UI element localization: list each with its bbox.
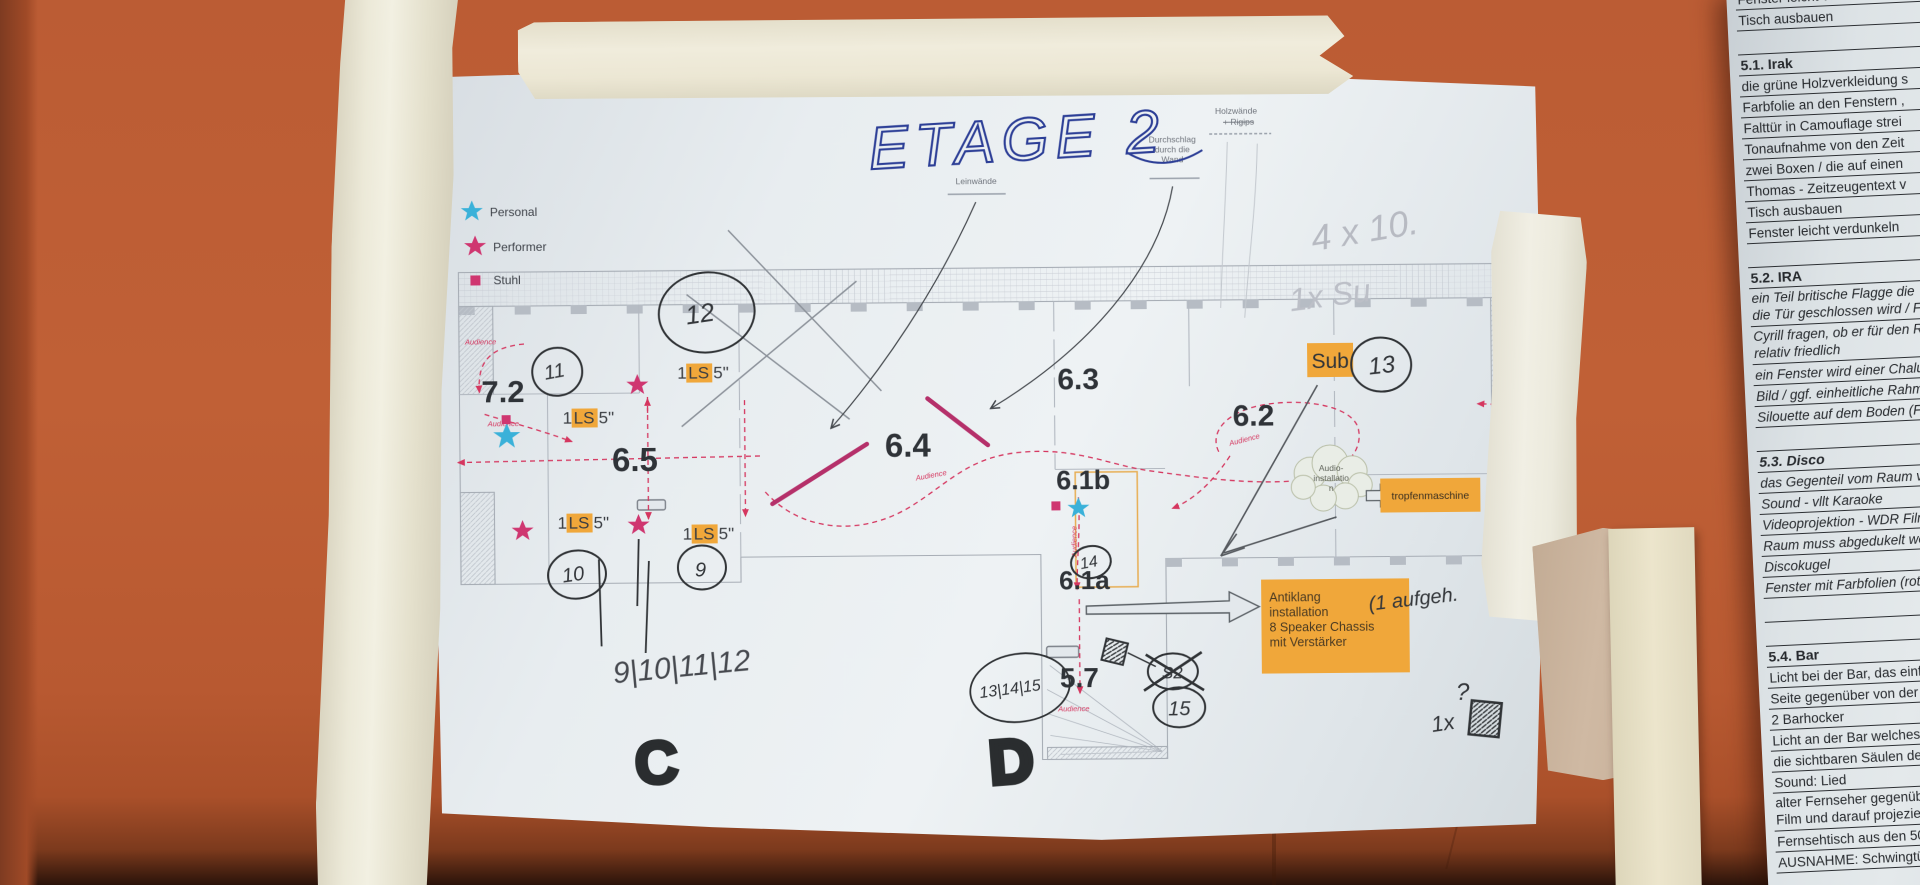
svg-text:1: 1 (683, 525, 693, 544)
svg-text:5": 5" (599, 408, 615, 427)
svg-text:14: 14 (1079, 553, 1100, 573)
tape-strip-cream (1608, 527, 1702, 885)
svg-text:5": 5" (593, 513, 609, 532)
svg-text:5": 5" (713, 363, 729, 382)
svg-text:Audience: Audience (1057, 704, 1089, 713)
room-6-4: 6.4 (885, 426, 932, 463)
svg-text:S2: S2 (1162, 663, 1184, 682)
stuhl-square-icon (470, 275, 480, 285)
personal-star-icon (461, 200, 483, 220)
svg-text:ETAGE 2: ETAGE 2 (867, 97, 1169, 182)
svg-text:9: 9 (695, 559, 706, 581)
svg-text:1: 1 (557, 514, 567, 533)
performer-star-icon (464, 235, 486, 255)
wall-left-edge (0, 0, 38, 885)
arrow-to-antiklang (1086, 592, 1259, 624)
svg-text:Sub: Sub (1311, 350, 1349, 373)
handwritten-sequence: 9|10|11|12 (611, 644, 752, 690)
svg-text:12: 12 (683, 297, 717, 331)
question-mark-note: ? (1456, 679, 1470, 706)
bench-symbol (637, 500, 665, 510)
svg-text:15: 15 (1168, 698, 1191, 720)
grey-cross-lines (680, 229, 882, 427)
svg-text:1: 1 (677, 364, 687, 383)
svg-text:LS: LS (574, 408, 595, 427)
barrier-lines (771, 398, 988, 504)
svg-text:13: 13 (1367, 351, 1397, 381)
tape-strip-top (518, 14, 1354, 103)
svg-text:installation: installation (1269, 605, 1328, 620)
svg-text:LS: LS (694, 524, 715, 543)
svg-text:installatio: installatio (1313, 473, 1349, 483)
bench-symbol (1047, 646, 1079, 657)
svg-text:11: 11 (542, 359, 566, 384)
svg-text:LS: LS (688, 363, 709, 382)
checklist: Fenster leicht verTisch ausbauen5.1. Ira… (1735, 0, 1920, 874)
svg-text:Audio-: Audio- (1319, 463, 1344, 473)
hatched-box-small (1101, 638, 1128, 665)
svg-text:10: 10 (561, 563, 586, 588)
stuhl-square-icon (502, 415, 511, 424)
audio-installation-cloud: Audio- installatio n (1291, 445, 1373, 512)
tropfenmaschine-label: tropfenmaschine (1380, 478, 1480, 513)
stuhl-square-icon (1051, 501, 1060, 510)
marker-letter-c: C (633, 728, 680, 798)
rigips-label: + Rigips (1223, 117, 1254, 127)
svg-text:LS: LS (568, 513, 589, 532)
floor-plan-paper: Audience Audience Audience Audience Audi… (427, 50, 1548, 866)
legend-performer-label: Performer (493, 240, 546, 254)
marker-letter-d: D (986, 726, 1036, 798)
svg-text:8 Speaker Chassis: 8 Speaker Chassis (1269, 620, 1374, 635)
room-7-2: 7.2 (481, 374, 524, 409)
floor-plan: Audience Audience Audience Audience Audi… (427, 50, 1548, 866)
svg-text:5": 5" (719, 524, 735, 543)
plan-content: Audience Audience Audience Audience Audi… (455, 94, 1528, 803)
leinwaende-label: Leinwände (956, 176, 997, 186)
legend-stuhl-label: Stuhl (493, 273, 520, 287)
svg-text:Audience: Audience (1227, 431, 1261, 448)
svg-text:1: 1 (563, 409, 573, 428)
svg-text:tropfenmaschine: tropfenmaschine (1391, 490, 1469, 503)
svg-text:Audience: Audience (914, 468, 947, 483)
title-etage2: ETAGE 2 (866, 97, 1202, 182)
personal-star-icon (1067, 497, 1089, 517)
room-6-2: 6.2 (1233, 399, 1275, 432)
performer-star-icon (512, 520, 534, 540)
room-6-3: 6.3 (1057, 363, 1099, 396)
qty-note: 1x (1429, 709, 1457, 737)
svg-text:Audience: Audience (464, 337, 496, 346)
performer-star-icon (627, 514, 649, 534)
sub-label: Sub (1307, 343, 1353, 377)
room-5-7: 5.7 (1060, 662, 1099, 693)
legend-personal-label: Personal (490, 205, 537, 219)
svg-text:mit Verstärker: mit Verstärker (1270, 635, 1347, 650)
photo-of-wall: Fenster leicht verTisch ausbauen5.1. Ira… (0, 0, 1920, 885)
hatched-box-note (1469, 700, 1502, 737)
performer-star-icon (626, 374, 648, 394)
svg-text:13|14|15: 13|14|15 (978, 677, 1041, 702)
holzwaende-label: Holzwände (1215, 106, 1257, 116)
room-6-1b: 6.1b (1056, 465, 1110, 495)
room-6-5: 6.5 (612, 441, 658, 478)
pencil-note-4x10: 4 x 10. (1308, 201, 1421, 259)
svg-text:Antiklang: Antiklang (1269, 590, 1321, 604)
svg-text:n: n (1329, 483, 1334, 493)
